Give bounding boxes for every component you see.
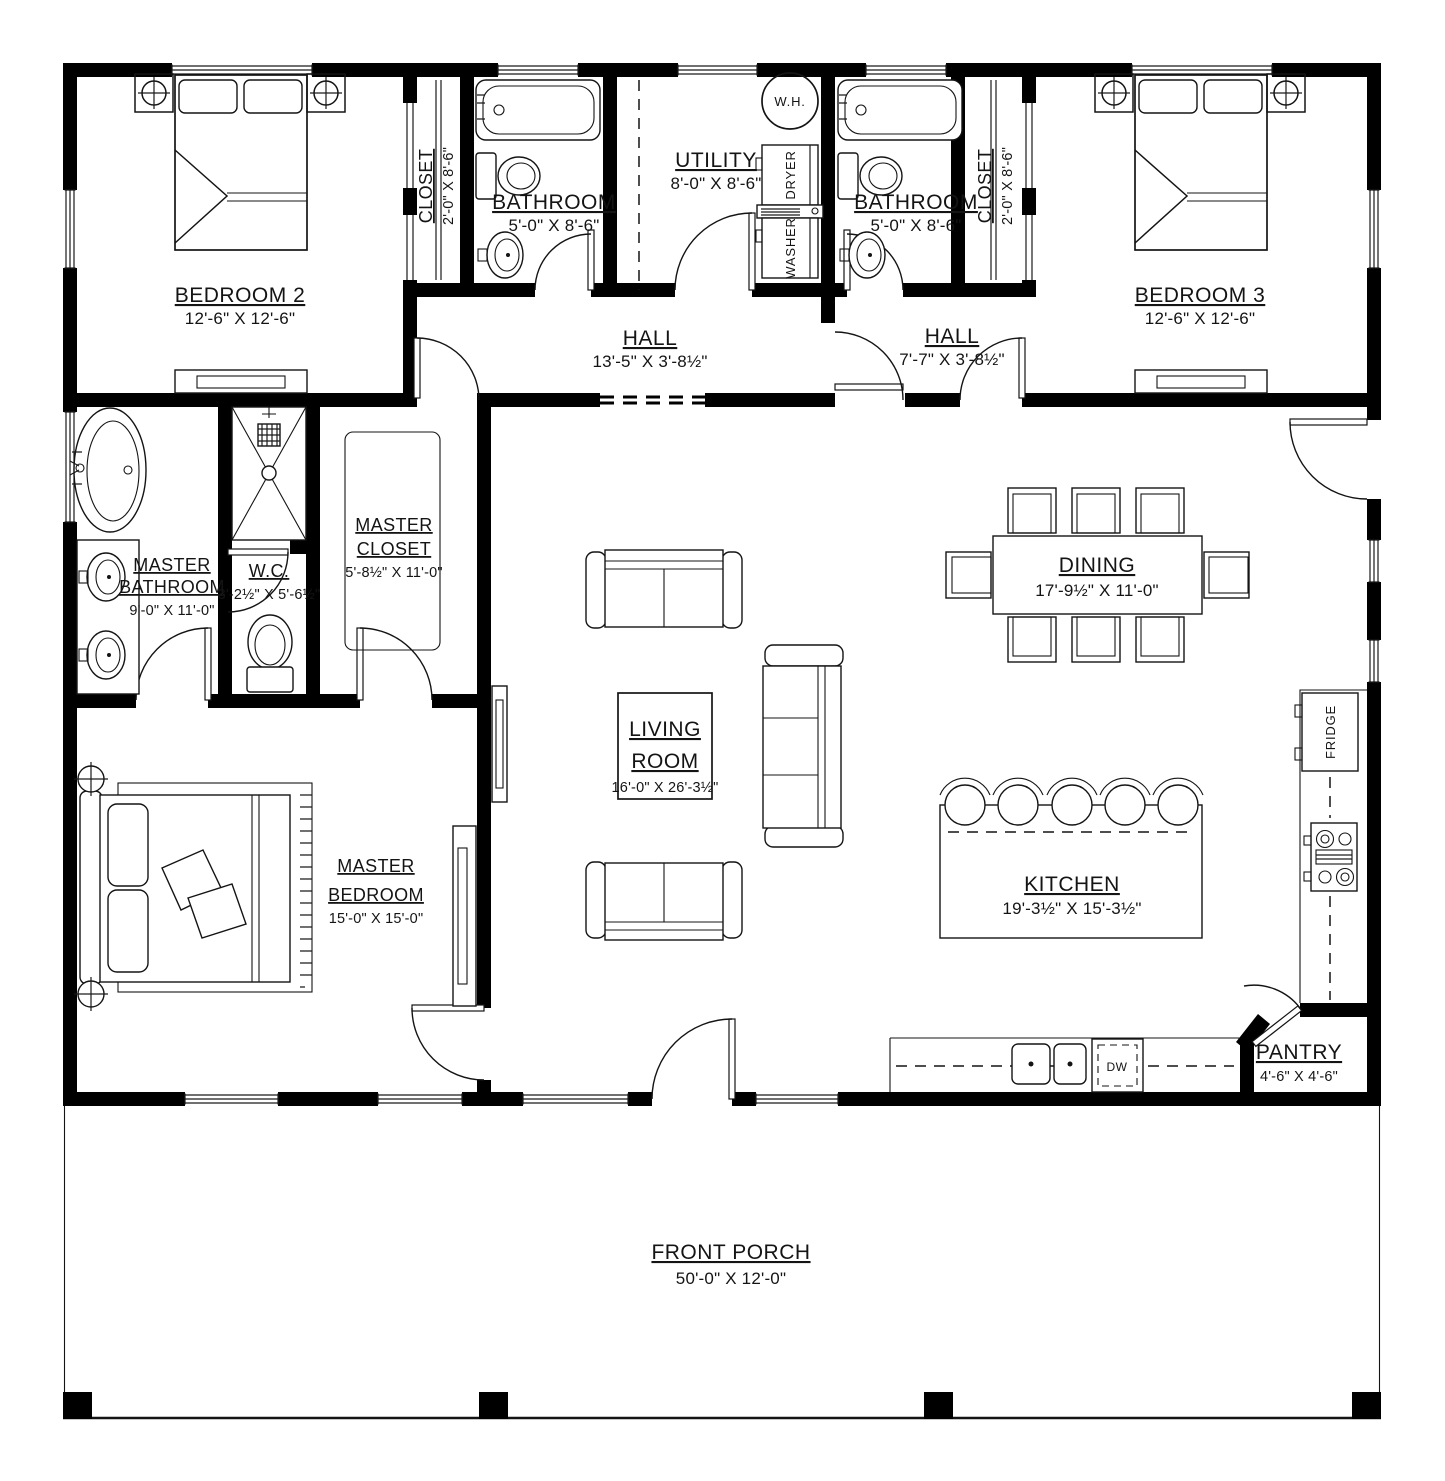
dining-chair-icon — [1008, 617, 1056, 662]
sofa-icon — [763, 645, 843, 847]
bathroom-right-dims: 5'-0" X 8'-6" — [870, 216, 961, 235]
window-icon — [498, 65, 578, 76]
closet-left-dims: 2'-0" X 8'-6" — [441, 147, 457, 225]
toilet-icon — [247, 615, 293, 692]
dishwasher-label: DW — [1107, 1060, 1128, 1074]
dryer-label: DRYER — [783, 150, 798, 199]
closet-right-label: CLOSET — [975, 149, 995, 223]
master-closet-door-icon — [357, 628, 432, 700]
dining-label: DINING — [1059, 554, 1136, 577]
dining-chair-icon — [1008, 488, 1056, 533]
kitchen-dims: 19'-3½" X 15'-3½" — [1002, 899, 1141, 918]
loveseat-icon — [586, 862, 742, 940]
closet-left-label: CLOSET — [416, 149, 436, 223]
master-closet-label-line1: MASTER — [355, 515, 432, 535]
bathroom-left-label: BATHROOM — [492, 191, 616, 214]
master-closet-label-line2: CLOSET — [357, 539, 431, 559]
dining-chair-icon — [1136, 617, 1184, 662]
porch-post-icon — [924, 1392, 953, 1419]
bed-icon — [1095, 74, 1305, 393]
pantry-dims: 4'-6" X 4'-6" — [1260, 1069, 1338, 1085]
bedroom3-dims: 12'-6" X 12'-6" — [1145, 309, 1255, 328]
living-room-dims: 16'-0" X 26'-3½" — [612, 780, 719, 796]
window-icon — [172, 65, 312, 76]
laundry-controls-icon — [757, 205, 823, 218]
window-icon — [65, 190, 76, 268]
kitchen-fixtures — [890, 690, 1367, 1092]
bed-icon — [135, 74, 345, 393]
master-bedroom-door-icon — [412, 1005, 484, 1080]
window-icon — [185, 1094, 278, 1105]
bathtub-toilet-sink-icon — [476, 80, 600, 278]
closet-right-dims: 2'-0" X 8'-6" — [1000, 147, 1016, 225]
fridge-label: FRIDGE — [1323, 705, 1338, 759]
porch-post-icon — [63, 1392, 92, 1419]
master-bedroom-label-line1: MASTER — [337, 856, 414, 876]
master-bathroom-dims: 9'-0" X 11'-0" — [129, 603, 214, 619]
side-door-icon — [1290, 419, 1367, 499]
console-icon — [492, 686, 507, 802]
pantry-label: PANTRY — [1256, 1041, 1342, 1064]
porch-post-icon — [1352, 1392, 1381, 1419]
window-icon — [1369, 190, 1380, 268]
stove-icon — [1304, 823, 1357, 891]
hall-left-dims: 13'-5" X 3'-8½" — [592, 352, 707, 371]
window-icon — [1132, 65, 1272, 76]
dining-chair-icon — [1136, 488, 1184, 533]
kitchen-sink-icon — [1012, 1044, 1086, 1084]
dining-chair-icon — [1204, 552, 1249, 598]
loveseat-icon — [586, 550, 742, 628]
front-door-icon — [652, 1019, 735, 1099]
master-closet-dims: 5'-8½" X 11'-0" — [345, 565, 443, 581]
master-bathroom-label-line1: MASTER — [133, 555, 210, 575]
window-icon — [678, 65, 757, 76]
floor-plan-page: BEDROOM 2 12'-6" X 12'-6" BEDROOM 3 12'-… — [0, 0, 1445, 1481]
living-room-label-line1: LIVING — [629, 718, 701, 741]
porch-post-icon — [479, 1392, 508, 1419]
dining-chair-icon — [1072, 488, 1120, 533]
front-porch-label: FRONT PORCH — [651, 1241, 810, 1264]
wc-dims: 3'-2½" X 5'-6½" — [218, 587, 321, 603]
window-icon — [756, 1094, 838, 1105]
shower-icon — [232, 407, 306, 540]
washer-label: WASHER — [783, 217, 798, 278]
freestanding-tub-icon — [70, 408, 146, 532]
window-icon — [1369, 540, 1380, 582]
hall-door-icon — [835, 332, 903, 400]
kitchen-label: KITCHEN — [1024, 873, 1120, 896]
bathroom-left-door-icon — [535, 230, 594, 290]
front-porch-dims: 50'-0" X 12'-0" — [676, 1269, 786, 1288]
bathroom-right-label: BATHROOM — [854, 191, 978, 214]
dresser-icon — [453, 826, 476, 1006]
bedroom2-label: BEDROOM 2 — [175, 284, 306, 307]
bathtub-toilet-sink-icon — [838, 80, 962, 278]
master-bedroom-label-line2: BEDROOM — [328, 885, 424, 905]
living-room-label-line2: ROOM — [631, 750, 698, 773]
water-heater-label: W.H. — [774, 94, 805, 109]
room-labels: BEDROOM 2 12'-6" X 12'-6" BEDROOM 3 12'-… — [119, 147, 1342, 1288]
master-bedroom-dims: 15'-0" X 15'-0" — [329, 911, 424, 927]
bedroom2-door-icon — [414, 338, 479, 400]
bedroom2-dims: 12'-6" X 12'-6" — [185, 309, 295, 328]
floor-plan-canvas: BEDROOM 2 12'-6" X 12'-6" BEDROOM 3 12'-… — [0, 0, 1445, 1481]
dining-dims: 17'-9½" X 11'-0" — [1035, 581, 1159, 600]
master-bed-icon — [80, 791, 290, 984]
window-icon — [378, 1094, 462, 1105]
master-bathroom-door-icon — [136, 628, 211, 700]
window-icon — [1369, 640, 1380, 682]
window-icon — [523, 1094, 628, 1105]
dining-chair-icon — [946, 552, 991, 598]
bedroom3-label: BEDROOM 3 — [1135, 284, 1266, 307]
bathroom-left-dims: 5'-0" X 8'-6" — [508, 216, 599, 235]
lamp-icon — [74, 762, 108, 796]
window-icon — [866, 65, 946, 76]
wc-label: W.C. — [249, 561, 290, 581]
master-bathroom-label-line2: BATHROOM — [119, 577, 225, 597]
dining-chair-icon — [1072, 617, 1120, 662]
utility-label: UTILITY — [675, 149, 757, 172]
hall-right-label: HALL — [925, 325, 980, 348]
hall-left-label: HALL — [623, 327, 678, 350]
utility-dims: 8'-0" X 8'-6" — [670, 174, 761, 193]
utility-door-icon — [675, 213, 755, 290]
hall-right-dims: 7'-7" X 3'-8½" — [899, 350, 1004, 369]
living-room-furniture — [492, 550, 843, 940]
